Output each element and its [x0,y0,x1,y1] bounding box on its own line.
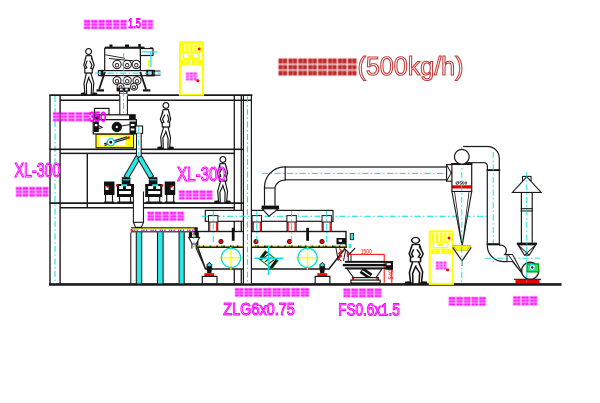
svg-text:XL-300: XL-300 [15,160,61,182]
svg-text:ZLG6x0.75: ZLG6x0.75 [223,299,294,319]
svg-text:350: 350 [89,110,106,125]
svg-text:FS0.6x1.5: FS0.6x1.5 [338,300,400,320]
svg-text:XL-300: XL-300 [177,164,226,186]
svg-text:(500kg/h): (500kg/h) [358,51,464,81]
svg-text:540: 540 [389,269,395,280]
svg-text:1500: 1500 [361,250,373,256]
svg-text:1.5: 1.5 [128,15,141,31]
